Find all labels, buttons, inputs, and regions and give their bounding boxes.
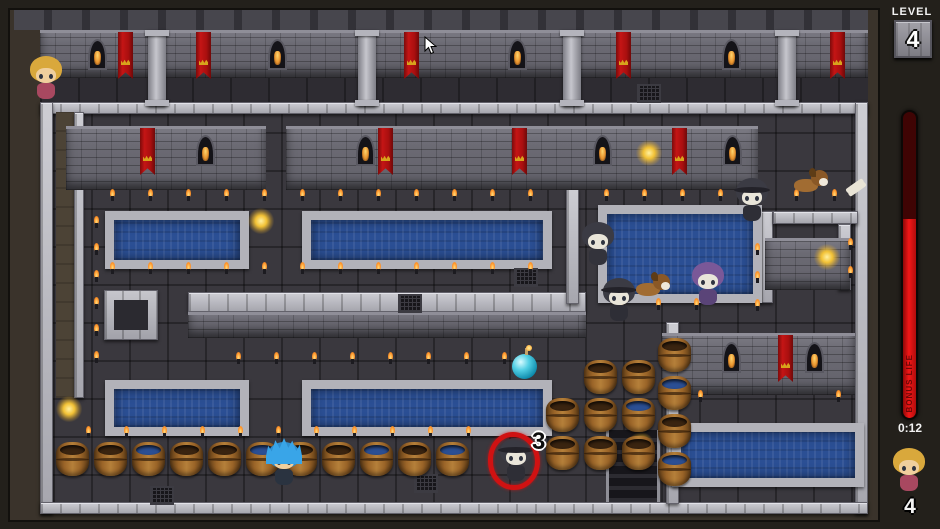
level-value: 4	[907, 26, 920, 53]
barrel	[208, 442, 241, 476]
barrel	[398, 442, 431, 476]
game-playfield[interactable]: 3	[10, 10, 878, 520]
glowing-torch-pickup[interactable]	[56, 396, 82, 422]
arched-window	[268, 39, 287, 70]
wall-candle-icon	[262, 189, 267, 201]
water-pool	[105, 211, 249, 269]
barrel	[360, 442, 393, 476]
arched-window	[88, 39, 107, 70]
captive-girl-npc	[28, 56, 64, 102]
wall-candle-icon	[464, 352, 469, 364]
enemy-hooded[interactable]	[580, 222, 616, 268]
level-indicator: 4	[894, 20, 932, 58]
wall-candle-icon	[388, 352, 393, 364]
wall-candle-icon	[110, 189, 115, 201]
body	[900, 475, 918, 491]
stone-alcove	[104, 290, 158, 340]
crown-banner	[118, 32, 133, 79]
wall-candle-icon	[755, 299, 760, 311]
wall-candle-icon	[124, 426, 129, 438]
wall-candle-icon	[466, 426, 471, 438]
wall-candle-icon	[698, 390, 703, 402]
floor-grate	[398, 294, 422, 313]
barrel	[584, 398, 617, 432]
wall-candle-icon	[414, 262, 419, 274]
barrel	[94, 442, 127, 476]
crown-banner	[672, 128, 687, 175]
barrel	[622, 360, 655, 394]
window-candle-icon	[362, 147, 369, 161]
face	[36, 68, 56, 83]
face	[899, 460, 919, 475]
wall-candle-icon	[452, 262, 457, 274]
body	[610, 305, 628, 321]
wall-candle-icon	[94, 216, 99, 228]
crown-banner	[404, 32, 419, 79]
face	[698, 274, 718, 289]
crown-icon	[381, 154, 390, 161]
enemy-purple-hood[interactable]	[690, 262, 726, 308]
game-window: 3 LEVEL 4 BONUS LIFE 0:12 4	[0, 0, 940, 529]
stone-wall	[566, 188, 579, 304]
alcove-hole	[114, 300, 148, 330]
crown-banner	[616, 32, 631, 79]
arched-window	[508, 39, 527, 70]
wall-candle-icon	[642, 189, 647, 201]
wall-candle-icon	[390, 426, 395, 438]
wall-candle-icon	[86, 426, 91, 438]
barrel	[56, 442, 89, 476]
crown-icon	[619, 58, 628, 65]
level-label: LEVEL	[884, 6, 940, 18]
dog	[636, 274, 670, 300]
stone-pillar	[563, 30, 581, 106]
stone-wall	[188, 292, 586, 312]
arched-window	[356, 135, 375, 166]
body	[699, 289, 717, 305]
barrel	[658, 338, 691, 372]
wall-candle-icon	[276, 426, 281, 438]
arched-window	[722, 342, 741, 373]
water-pool	[672, 423, 864, 487]
spark-icon	[526, 345, 532, 351]
wall-candle-icon	[502, 352, 507, 364]
wall-candle-icon	[836, 390, 841, 402]
barrel	[584, 360, 617, 394]
spiky-hair	[266, 438, 302, 464]
stone-wall	[773, 211, 858, 224]
dear	[809, 168, 816, 177]
wall-candle-icon	[238, 426, 243, 438]
wall-candle-icon	[94, 297, 99, 309]
face	[588, 234, 608, 249]
glowing-torch-pickup[interactable]	[814, 244, 840, 270]
window-candle-icon	[274, 51, 281, 65]
arched-window	[805, 342, 824, 373]
hat-brim	[734, 187, 770, 193]
water-pool	[302, 211, 552, 269]
crown-icon	[143, 154, 152, 161]
wall-candle-icon	[94, 324, 99, 336]
crown-banner	[196, 32, 211, 79]
wall-candle-icon	[680, 189, 685, 201]
wall-candle-icon	[755, 271, 760, 283]
rescue-avatar	[891, 448, 927, 494]
wall-candle-icon	[352, 426, 357, 438]
floor-grate	[514, 268, 538, 287]
wall-candle-icon	[832, 189, 837, 201]
wall-candle-icon	[148, 262, 153, 274]
wall-candle-icon	[490, 262, 495, 274]
barrel	[584, 436, 617, 470]
dog	[794, 170, 828, 196]
rescue-avatar-girl	[891, 448, 927, 494]
wall-candle-icon	[162, 426, 167, 438]
bonus-life-label: BONUS LIFE	[905, 354, 914, 412]
barrel	[658, 452, 691, 486]
body	[275, 469, 293, 485]
barrel	[436, 442, 469, 476]
body	[589, 249, 607, 265]
dear	[651, 272, 658, 281]
floor-grate	[414, 474, 438, 493]
player-character[interactable]	[266, 442, 302, 488]
barrel	[546, 436, 579, 470]
wall-candle-icon	[528, 262, 533, 274]
wall-candle-icon	[94, 270, 99, 282]
wall-candle-icon	[848, 238, 853, 250]
window-candle-icon	[94, 51, 101, 65]
window-candle-icon	[202, 147, 209, 161]
barrel	[546, 398, 579, 432]
dmuz	[661, 282, 670, 290]
wall-candle-icon	[312, 352, 317, 364]
crown-icon	[781, 361, 790, 368]
wall-candle-icon	[94, 243, 99, 255]
crown-banner	[512, 128, 527, 175]
window-candle-icon	[728, 354, 735, 368]
glowing-torch-pickup[interactable]	[636, 140, 662, 166]
wall-candle-icon	[376, 189, 381, 201]
window-candle-icon	[599, 147, 606, 161]
barrel	[322, 442, 355, 476]
wall-candle-icon	[848, 266, 853, 278]
wall-candle-icon	[528, 189, 533, 201]
wall-candle-icon	[274, 352, 279, 364]
wall-candle-icon	[148, 189, 153, 201]
wall-candle-icon	[414, 189, 419, 201]
crown-icon	[515, 154, 524, 161]
wall-candle-icon	[426, 352, 431, 364]
body	[743, 205, 761, 221]
wall-candle-icon	[604, 189, 609, 201]
bonus-timer: 0:12	[884, 421, 936, 435]
crown-icon	[675, 154, 684, 161]
enemy-counter-label: 3	[532, 428, 545, 456]
water-pool	[302, 380, 552, 436]
window-candle-icon	[811, 354, 818, 368]
wall-candle-icon	[300, 262, 305, 274]
stone-pillar	[358, 30, 376, 106]
wall-candle-icon	[376, 262, 381, 274]
hat-brim	[601, 287, 637, 293]
wall-candle-icon	[186, 262, 191, 274]
barrel	[170, 442, 203, 476]
arched-window	[722, 39, 741, 70]
crown-banner	[378, 128, 393, 175]
crown-banner	[778, 335, 793, 382]
dmuz	[819, 178, 828, 186]
crown-icon	[121, 58, 130, 65]
crown-icon	[833, 58, 842, 65]
arched-window	[723, 135, 742, 166]
body	[37, 83, 55, 99]
barrel	[622, 436, 655, 470]
brick-wall	[188, 312, 586, 338]
crown-banner	[140, 128, 155, 175]
wall-candle-icon	[350, 352, 355, 364]
floor-grate	[637, 84, 661, 103]
barrel	[132, 442, 165, 476]
wall-candle-icon	[300, 189, 305, 201]
window-candle-icon	[729, 147, 736, 161]
castle-battlement	[14, 10, 868, 30]
wall-candle-icon	[428, 426, 433, 438]
wall-candle-icon	[94, 351, 99, 363]
bonus-life-bar: BONUS LIFE	[901, 110, 918, 420]
wall-candle-icon	[110, 262, 115, 274]
crown-icon	[407, 58, 416, 65]
stone-pillar	[148, 30, 166, 106]
water-bomb[interactable]	[512, 354, 537, 379]
enemy-hooded-hat[interactable]	[734, 178, 770, 224]
wall-candle-icon	[200, 426, 205, 438]
barrel	[622, 398, 655, 432]
crown-icon	[199, 58, 208, 65]
arched-window	[593, 135, 612, 166]
wall-candle-icon	[718, 189, 723, 201]
wall-candle-icon	[236, 352, 241, 364]
window-candle-icon	[728, 51, 735, 65]
arched-window	[196, 135, 215, 166]
wall-candle-icon	[224, 262, 229, 274]
wall-candle-icon	[452, 189, 457, 201]
mouse-cursor	[424, 36, 437, 55]
barrel	[658, 414, 691, 448]
glowing-torch-pickup[interactable]	[248, 208, 274, 234]
wall-candle-icon	[186, 189, 191, 201]
rescue-count: 4	[884, 495, 936, 519]
crown-banner	[830, 32, 845, 79]
wall-candle-icon	[262, 262, 267, 274]
wall-candle-icon	[490, 189, 495, 201]
stone-pillar	[778, 30, 796, 106]
stone-wall	[40, 102, 53, 514]
wall-candle-icon	[224, 189, 229, 201]
brick-wall	[66, 126, 266, 190]
floor-grate	[150, 486, 174, 505]
wall-candle-icon	[755, 243, 760, 255]
wall-candle-icon	[314, 426, 319, 438]
barrel	[658, 376, 691, 410]
wall-candle-icon	[338, 189, 343, 201]
window-candle-icon	[514, 51, 521, 65]
wall-candle-icon	[338, 262, 343, 274]
enemy-hooded-hat[interactable]	[601, 278, 637, 324]
